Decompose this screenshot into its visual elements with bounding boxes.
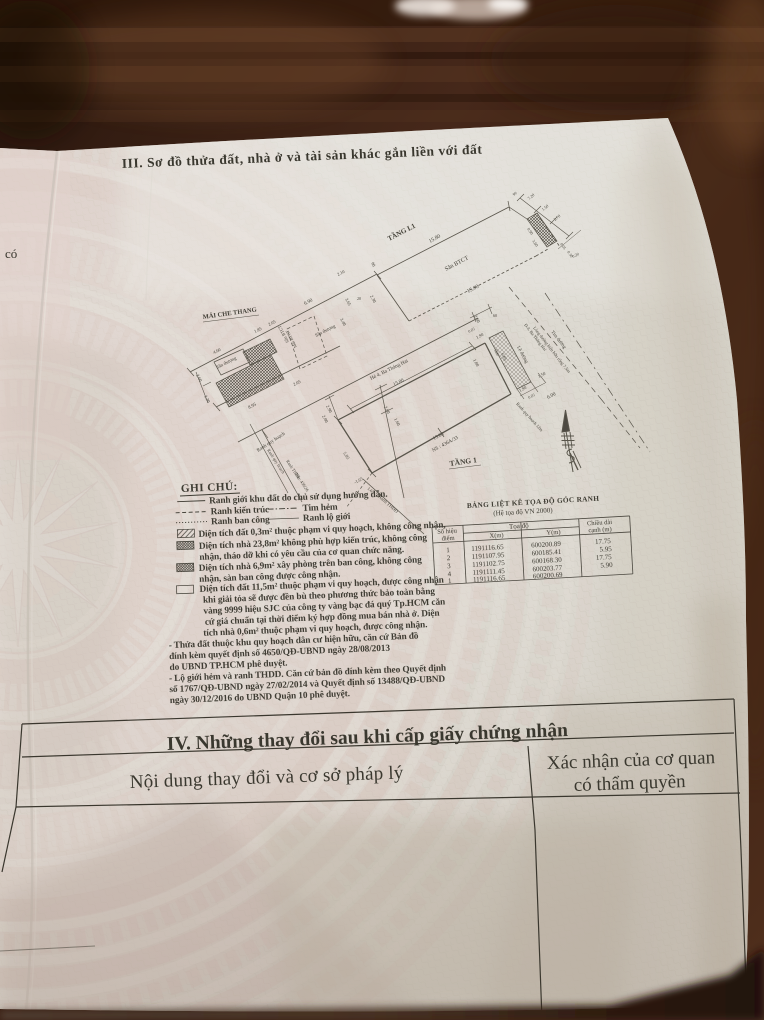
svg-text:600200.69: 600200.69 <box>533 571 564 581</box>
svg-text:điểm: điểm <box>441 535 454 543</box>
svg-text:có thẩm quyền: có thẩm quyền <box>573 771 686 796</box>
svg-text:20: 20 <box>357 296 361 301</box>
svg-text:Tọa độ: Tọa độ <box>509 522 530 531</box>
svg-text:60: 60 <box>493 313 497 318</box>
svg-text:cạnh (m): cạnh (m) <box>588 526 612 534</box>
svg-text:Ranh lộ giới: Ranh lộ giới <box>303 512 351 524</box>
svg-text:GHI CHÚ:: GHI CHÚ: <box>181 481 238 495</box>
svg-text:X(m): X(m) <box>489 532 503 540</box>
svg-text:5.90: 5.90 <box>600 561 613 570</box>
svg-text:có: có <box>5 246 17 261</box>
svg-text:Y(m): Y(m) <box>546 529 560 537</box>
